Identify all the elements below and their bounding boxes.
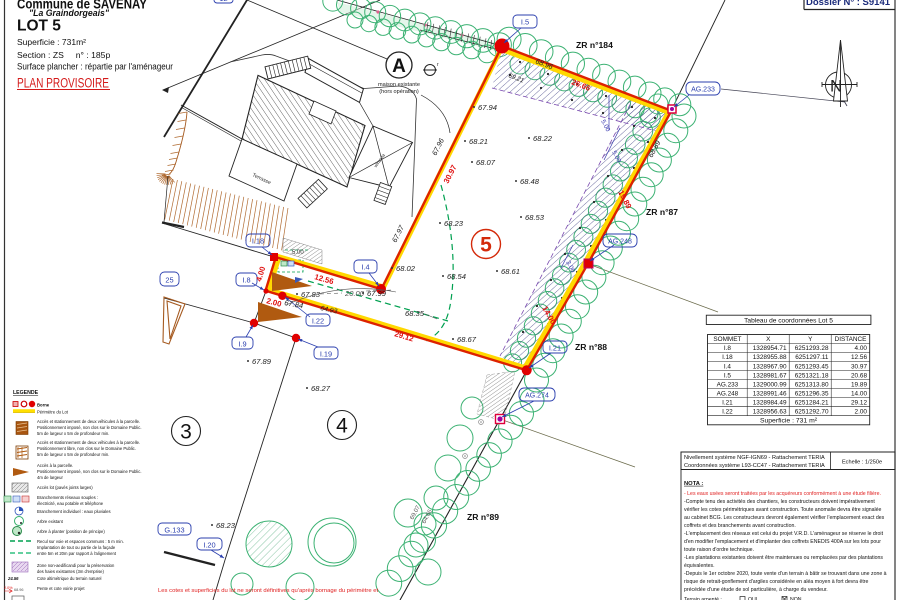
svg-text:ZR n°87: ZR n°87 [646, 207, 678, 217]
svg-text:6251292.70: 6251292.70 [795, 408, 829, 415]
svg-text:toute raison d'ordre technique: toute raison d'ordre technique. [684, 547, 754, 553]
svg-text:Accès lot (pavés joints larges: Accès lot (pavés joints larges) [37, 485, 93, 490]
svg-text:PLAN PROVISOIRE: PLAN PROVISOIRE [17, 76, 109, 91]
svg-text:19.89: 19.89 [851, 381, 867, 388]
svg-text:Surface plancher : répartie pa: Surface plancher : répartie par l'aménag… [17, 62, 173, 72]
svg-text:6251313.80: 6251313.80 [795, 381, 829, 388]
svg-text:14.00: 14.00 [851, 390, 867, 397]
svg-text:Arbre existant: Arbre existant [37, 519, 64, 524]
svg-text:Pente et cote voirie projet: Pente et cote voirie projet [37, 586, 85, 591]
svg-text:68.96: 68.96 [14, 588, 24, 592]
svg-text:Positionnement libre, non clos: Positionnement libre, non clos sur le Do… [37, 446, 136, 451]
svg-text:4m de largeur: 4m de largeur [37, 475, 63, 480]
svg-text:68.67: 68.67 [457, 335, 477, 344]
svg-text:1329000.99: 1329000.99 [753, 381, 787, 388]
svg-text:68.22: 68.22 [533, 134, 553, 143]
svg-text:"La Graindorgeais": "La Graindorgeais" [29, 8, 110, 18]
svg-text:ZR n°89: ZR n°89 [467, 512, 499, 522]
svg-text:Superficie : 731m²: Superficie : 731m² [17, 37, 86, 47]
svg-text:précédée d'une étude de sol pa: précédée d'une étude de sol particulière… [684, 587, 828, 593]
svg-text:1328967.90: 1328967.90 [753, 363, 787, 370]
svg-text:Recul sur voie et espaces comm: Recul sur voie et espaces communs : 5 m … [37, 539, 124, 544]
svg-text:AG.248: AG.248 [608, 239, 632, 246]
svg-text:Borne: Borne [37, 403, 50, 408]
svg-text:30.97: 30.97 [851, 363, 867, 370]
svg-text:vérifier les cotes périmétriqu: vérifier les cotes périmétriques avant c… [684, 507, 882, 513]
svg-text:68.23: 68.23 [444, 219, 464, 228]
svg-text:I.9: I.9 [238, 340, 246, 349]
svg-text:coffrets et des branchements a: coffrets et des branchements avant const… [684, 523, 796, 529]
svg-text:Positionnement imposé, non clo: Positionnement imposé, non clos sur le D… [37, 425, 142, 430]
svg-text:AG.274: AG.274 [525, 393, 549, 400]
svg-text:Echelle : 1/250e: Echelle : 1/250e [842, 460, 882, 466]
svg-text:6251284.21: 6251284.21 [795, 399, 829, 406]
svg-text:AG.233: AG.233 [691, 87, 715, 94]
svg-text:I.19: I.19 [320, 350, 332, 359]
svg-text:Nivellement système NGF-IGN69: Nivellement système NGF-IGN69 - Rattache… [684, 455, 825, 461]
svg-text:Accès à la parcelle.: Accès à la parcelle. [37, 463, 73, 468]
svg-text:Coordonnées système L93-CC47: Coordonnées système L93-CC47 - Rattachem… [684, 463, 825, 469]
svg-text:12.56: 12.56 [851, 354, 867, 361]
svg-text:6251321.18: 6251321.18 [795, 372, 829, 379]
svg-text:DISTANCE: DISTANCE [835, 336, 867, 343]
svg-text:68.61: 68.61 [501, 267, 520, 276]
svg-text:équivalentes.: équivalentes. [684, 563, 715, 569]
svg-text:1328956.63: 1328956.63 [753, 408, 787, 415]
svg-text:1328954.71: 1328954.71 [753, 345, 787, 352]
svg-text:68.07: 68.07 [476, 158, 496, 167]
svg-text:des haies existantes (3m d'emp: des haies existantes (3m d'emprise) [37, 569, 105, 574]
svg-text:5m de largeur x 5m de profonde: 5m de largeur x 5m de profondeur min. [37, 431, 109, 436]
svg-text:I.8: I.8 [242, 276, 250, 285]
svg-text:Les cotes et superficies du lo: Les cotes et superficies du lot ne seron… [158, 588, 379, 594]
svg-text:I.4: I.4 [361, 263, 369, 272]
svg-text:I.21: I.21 [722, 399, 733, 406]
svg-text:6251297.11: 6251297.11 [795, 354, 829, 361]
svg-text:29.12: 29.12 [851, 399, 867, 406]
svg-text:68.54: 68.54 [447, 272, 466, 281]
svg-text:au cabinet BCG. Les constructe: au cabinet BCG. Les constructeurs devron… [684, 515, 885, 521]
svg-text:68.21: 68.21 [469, 137, 488, 146]
svg-text:67.83: 67.83 [301, 290, 321, 299]
svg-text:A: A [392, 56, 406, 77]
svg-text:Positionnement imposé, non clo: Positionnement imposé, non clos sur le D… [37, 469, 142, 474]
svg-text:6251296.35: 6251296.35 [795, 390, 829, 397]
svg-text:-Compte tenu des activités des: -Compte tenu des activités des chantiers… [684, 499, 875, 505]
svg-text:Section : ZS n° : 185p: Section : ZS n° : 185p [17, 50, 110, 60]
svg-text:ZR n°184: ZR n°184 [576, 40, 613, 50]
svg-text:Tableau de coordonnées Lot 5: Tableau de coordonnées Lot 5 [744, 318, 833, 325]
svg-text:Superficie : 731 m²: Superficie : 731 m² [760, 418, 818, 425]
svg-text:I.20: I.20 [203, 541, 215, 550]
svg-text:2.0%: 2.0% [4, 586, 13, 590]
svg-text:Branchements réseaux souples :: Branchements réseaux souples : [37, 495, 98, 500]
svg-text:-L'emplacement des réseaux est: -L'emplacement des réseaux est celui du … [684, 531, 884, 537]
svg-text:4: 4 [336, 415, 348, 438]
svg-text:20.00: 20.00 [344, 289, 365, 298]
svg-text:24.56: 24.56 [7, 576, 19, 581]
svg-text:d'en modifier l'emplacement et: d'en modifier l'emplacement et d'implant… [684, 539, 881, 545]
svg-text:67.89: 67.89 [252, 357, 272, 366]
svg-text:I.18: I.18 [252, 237, 264, 246]
svg-text:68.48: 68.48 [520, 177, 540, 186]
svg-text:68.35: 68.35 [405, 309, 425, 318]
svg-text:SOMMET: SOMMET [713, 336, 741, 343]
svg-text:Cote altimétrique du terrain n: Cote altimétrique du terrain naturel [37, 576, 102, 581]
svg-text:12: 12 [219, 0, 227, 3]
svg-text:25: 25 [165, 276, 173, 285]
svg-text:Branchement individuel : eaux: Branchement individuel : eaux pluviales [37, 509, 111, 514]
svg-text:I.8: I.8 [724, 345, 732, 352]
svg-text:6251293.28: 6251293.28 [795, 345, 829, 352]
svg-text:68.27: 68.27 [311, 384, 331, 393]
svg-text:1328955.88: 1328955.88 [753, 354, 787, 361]
svg-text:6251293.45: 6251293.45 [795, 363, 829, 370]
svg-text:Zone non-aedificandi pour la p: Zone non-aedificandi pour la préservatio… [37, 563, 115, 568]
svg-text:risque de retrait-gonflement d: risque de retrait-gonflement d'argiles c… [684, 579, 868, 585]
svg-text:68.02: 68.02 [396, 264, 416, 273]
svg-text:68.23: 68.23 [216, 521, 236, 530]
svg-text:4.00: 4.00 [855, 345, 868, 352]
svg-text:I.21: I.21 [549, 344, 561, 353]
svg-text:1328984.49: 1328984.49 [753, 399, 787, 406]
svg-text:Y: Y [808, 336, 813, 343]
svg-text:5: 5 [480, 234, 492, 257]
svg-text:-Depuis le 1er octobre 2020, t: -Depuis le 1er octobre 2020, toute vente… [684, 571, 887, 577]
svg-text:- Les eaux usées seront traité: - Les eaux usées seront traitées par les… [684, 491, 881, 497]
svg-text:3: 3 [180, 421, 192, 444]
svg-text:I.22: I.22 [722, 408, 733, 415]
svg-text:Implantation de tout ou partie: Implantation de tout ou partie de la faç… [37, 545, 116, 550]
svg-text:ZR n°88: ZR n°88 [575, 342, 607, 352]
svg-text:X: X [766, 336, 771, 343]
svg-text:I.22: I.22 [312, 317, 324, 326]
svg-text:N: N [830, 77, 842, 96]
svg-text:maison existante: maison existante [378, 82, 420, 88]
svg-text:I.4: I.4 [724, 363, 732, 370]
svg-text:AG.248: AG.248 [717, 390, 739, 397]
svg-text:1328991.46: 1328991.46 [753, 390, 787, 397]
svg-text:Arbre à planter (position de p: Arbre à planter (position de principe) [37, 529, 105, 534]
svg-text:5m de largeur x 5m de profonde: 5m de largeur x 5m de profondeur min. [37, 452, 109, 457]
svg-text:entre 5m et 20m par rapport à: entre 5m et 20m par rapport à l'aligneme… [37, 551, 117, 556]
svg-text:LOT 5: LOT 5 [17, 18, 61, 35]
svg-text:Accès et stationnement de deux: Accès et stationnement de deux véhicules… [37, 440, 140, 445]
svg-text:électricité, eau potable et té: électricité, eau potable et téléphone [37, 501, 104, 506]
svg-text:67.94: 67.94 [478, 103, 497, 112]
svg-text:Dossier N° : S9141: Dossier N° : S9141 [806, 0, 891, 8]
svg-text:G.133: G.133 [164, 526, 184, 535]
svg-text:LEGENDE: LEGENDE [13, 390, 39, 396]
svg-text:68.53: 68.53 [525, 213, 545, 222]
svg-text:2.00: 2.00 [855, 408, 868, 415]
svg-text:I.5: I.5 [521, 18, 529, 27]
svg-text:-Les plantations existantes do: -Les plantations existantes doivent être… [684, 555, 883, 561]
svg-text:NOTA :: NOTA : [684, 481, 703, 487]
svg-text:20.68: 20.68 [851, 372, 867, 379]
svg-text:Périmètre du Lot: Périmètre du Lot [37, 410, 69, 415]
svg-text:(hors opération): (hors opération) [379, 89, 419, 95]
svg-text:I.5: I.5 [724, 372, 732, 379]
svg-text:1328981.67: 1328981.67 [753, 372, 787, 379]
svg-text:AG.233: AG.233 [717, 381, 739, 388]
svg-text:Accès et stationnement de deux: Accès et stationnement de deux véhicules… [37, 419, 140, 424]
svg-text:I.18: I.18 [722, 354, 733, 361]
